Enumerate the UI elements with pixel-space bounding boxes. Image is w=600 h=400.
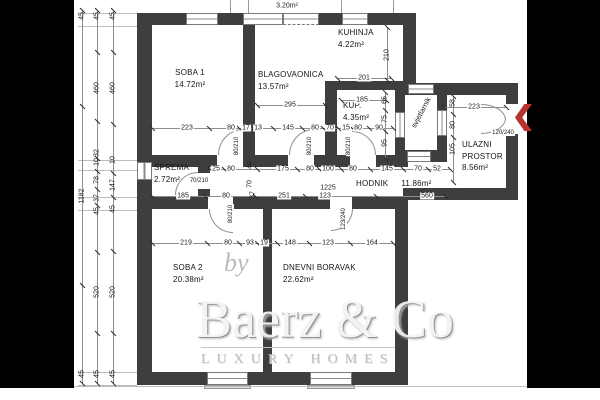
room-label-soba2: SOBA 2 20.38m²: [173, 262, 204, 285]
dimension-label: 45: [110, 11, 117, 21]
dimension-label: 65: [382, 95, 389, 105]
door-size-label: 80/210: [228, 204, 234, 224]
dimension-label: 219: [179, 240, 193, 247]
dimension-label: 145: [281, 125, 295, 132]
letterbox-right: [527, 0, 600, 388]
room-area: 20.38m²: [173, 274, 204, 286]
dimension-label: 80: [348, 166, 358, 173]
door-size-label: 123/240: [341, 207, 347, 231]
door-size-label: 80/210: [307, 136, 313, 156]
room-name: SOBA 1: [160, 67, 220, 79]
dimension-label: 80: [353, 125, 363, 132]
room-name: DNEVNI BORAVAK: [283, 262, 356, 274]
letterbox-left: [0, 0, 74, 388]
dimension-label: 80: [226, 125, 236, 132]
dimension-label: 19: [259, 240, 269, 247]
wall-kup-top: [325, 81, 416, 90]
room-area: 2.72m²: [154, 174, 189, 186]
window-sprema: [137, 162, 152, 180]
balcony-area-label: 3.20m²: [275, 3, 299, 10]
dimension-label: 93: [245, 240, 255, 247]
dimension-label: 70: [325, 125, 335, 132]
room-label-blagovaonica: BLAGOVAONICA 13.57m²: [258, 69, 323, 92]
dimension-label: 45: [94, 369, 101, 379]
dimension-label: 45: [79, 369, 86, 379]
dimension-label: 45: [110, 369, 117, 379]
dimension-label: 100: [321, 166, 335, 173]
dimension-label: 80: [305, 166, 315, 173]
extension-line: [78, 170, 137, 171]
dimension-label: 460: [110, 81, 117, 95]
room-name: BLAGOVAONICA: [258, 69, 323, 81]
room-label-kuhinja: KUHINJA 4.22m²: [338, 27, 374, 50]
dimension-label: 45: [79, 11, 86, 21]
dimension-label: 58: [450, 98, 457, 108]
balcony-door: [283, 13, 319, 25]
room-label-hodnik: HODNIK 11.86m²: [356, 178, 431, 190]
extension-line: [78, 13, 137, 14]
room-label-sprema: SPREMA 2.72m²: [154, 162, 189, 185]
room-name: SOBA 2: [173, 262, 204, 274]
door-size-label: 80/210: [346, 136, 352, 156]
extension-line: [78, 372, 137, 373]
door-size-label: 70/210: [189, 178, 209, 184]
door-size-label: 80/210: [234, 136, 240, 156]
wall-bottom: [137, 372, 408, 385]
window: [342, 13, 368, 25]
watermark-brand: Baerz & Co: [196, 288, 426, 350]
extension-line: [78, 197, 137, 198]
door-swing: [352, 131, 376, 155]
dimension-label: 520: [110, 285, 117, 299]
dimension-label: 123: [318, 193, 332, 200]
window-soba2: [207, 372, 248, 385]
window-svjetlarnik-left: [395, 112, 405, 138]
room-name: ULAZNI: [462, 139, 503, 151]
dimension-label: 1225: [319, 185, 337, 192]
room-label-ulazni: ULAZNI PROSTOR 8.56m²: [462, 139, 503, 174]
balcony-line: [248, 0, 249, 13]
dimension-label: 37: [250, 190, 257, 200]
room-area: 8.56m²: [462, 162, 503, 174]
window-svjetlarnik-bottom: [407, 151, 431, 162]
window-svjetlarnik-right: [437, 110, 447, 136]
room-label-soba1: SOBA 1 14.72m²: [160, 67, 220, 90]
dimension-label: 15: [341, 125, 351, 132]
dimension-label: 560: [420, 193, 434, 200]
dimension-label: 295: [283, 102, 297, 109]
room-name: PROSTOR: [462, 151, 503, 163]
dimension-label: 37: [94, 193, 101, 203]
dimension-label: 45: [94, 11, 101, 21]
wall-soba2-dnevni: [263, 209, 272, 372]
dimension-label: 1182: [79, 187, 86, 204]
dimension-label: 80: [450, 120, 457, 130]
window: [243, 13, 283, 25]
window: [186, 13, 218, 25]
room-area: 11.86m²: [401, 178, 431, 190]
dimension-label: 175: [276, 166, 290, 173]
dimension-label: 145: [380, 166, 394, 173]
dimension-label: 80: [223, 240, 233, 247]
dimension-label: 70: [413, 166, 423, 173]
dimension-label: 223: [180, 125, 194, 132]
balcony-line: [230, 0, 231, 13]
dimension-label: 45: [94, 206, 101, 216]
dimension-label: 80: [221, 193, 231, 200]
dimension-label: 10: [94, 157, 101, 167]
room-area: 22.62m²: [283, 274, 356, 286]
room-area: 14.72m²: [160, 79, 220, 91]
dimension-label: 223: [467, 104, 481, 111]
watermark-by: by: [224, 248, 249, 278]
dimension-label: 40: [247, 160, 254, 170]
dimension-label: 78: [94, 175, 101, 185]
balcony-line: [341, 0, 342, 13]
dimension-label: 164: [365, 240, 379, 247]
dimension-label: 201: [357, 75, 371, 82]
dimension-label: 25: [211, 166, 221, 173]
room-area: 4.22m²: [338, 39, 374, 51]
dimension-line: [152, 196, 445, 197]
room-name: KUHINJA: [338, 27, 374, 39]
floor-plan-page: 3.20m²: [0, 0, 600, 400]
dimension-label: 251: [277, 193, 291, 200]
room-name: SPREMA: [154, 162, 189, 174]
dimension-label: 210: [384, 48, 391, 62]
room-label-dnevni: DNEVNI BORAVAK 22.62m²: [283, 262, 356, 285]
dimension-label: 13: [253, 125, 263, 132]
dimension-label: 148: [283, 240, 297, 247]
room-label-svjetlarnik: svjetlarnik: [407, 91, 436, 134]
dimension-label: 520: [94, 285, 101, 299]
watermark-tagline: LUXURY HOMES: [201, 352, 395, 368]
dimension-label: 17: [241, 125, 251, 132]
dimension-label: 45: [110, 204, 117, 214]
dimension-label: 95: [382, 138, 389, 148]
dimension-label: 105: [450, 142, 457, 156]
room-area: 4.35m²: [343, 112, 369, 124]
dimension-label: 185: [176, 193, 190, 200]
door-size-label: 120/240: [491, 130, 515, 136]
wall-soba1-blagovaonica: [243, 25, 255, 158]
dimension-label: 75: [382, 114, 389, 124]
dimension-label: 10: [110, 155, 117, 165]
dimension-label: 147: [110, 178, 117, 192]
wall-kitchen-right: [403, 13, 416, 91]
balcony-line: [393, 0, 394, 13]
dimension-label: 185: [355, 97, 369, 104]
dimension-label: 460: [94, 81, 101, 95]
dimension-label: 80: [310, 125, 320, 132]
room-name: HODNIK: [356, 178, 388, 190]
ground-line: [74, 386, 600, 387]
dimension-label: 52: [432, 166, 442, 173]
window-dnevni: [310, 372, 352, 385]
extension-line: [78, 160, 137, 161]
wall-lower-right: [395, 197, 408, 385]
watermark-divider: [201, 347, 395, 348]
dimension-label: 123: [321, 240, 335, 247]
dimension-label: 70: [247, 179, 254, 189]
extension-line: [78, 26, 137, 27]
extension-line: [78, 210, 137, 211]
dimension-label: 80: [226, 166, 236, 173]
room-area: 13.57m²: [258, 81, 323, 93]
